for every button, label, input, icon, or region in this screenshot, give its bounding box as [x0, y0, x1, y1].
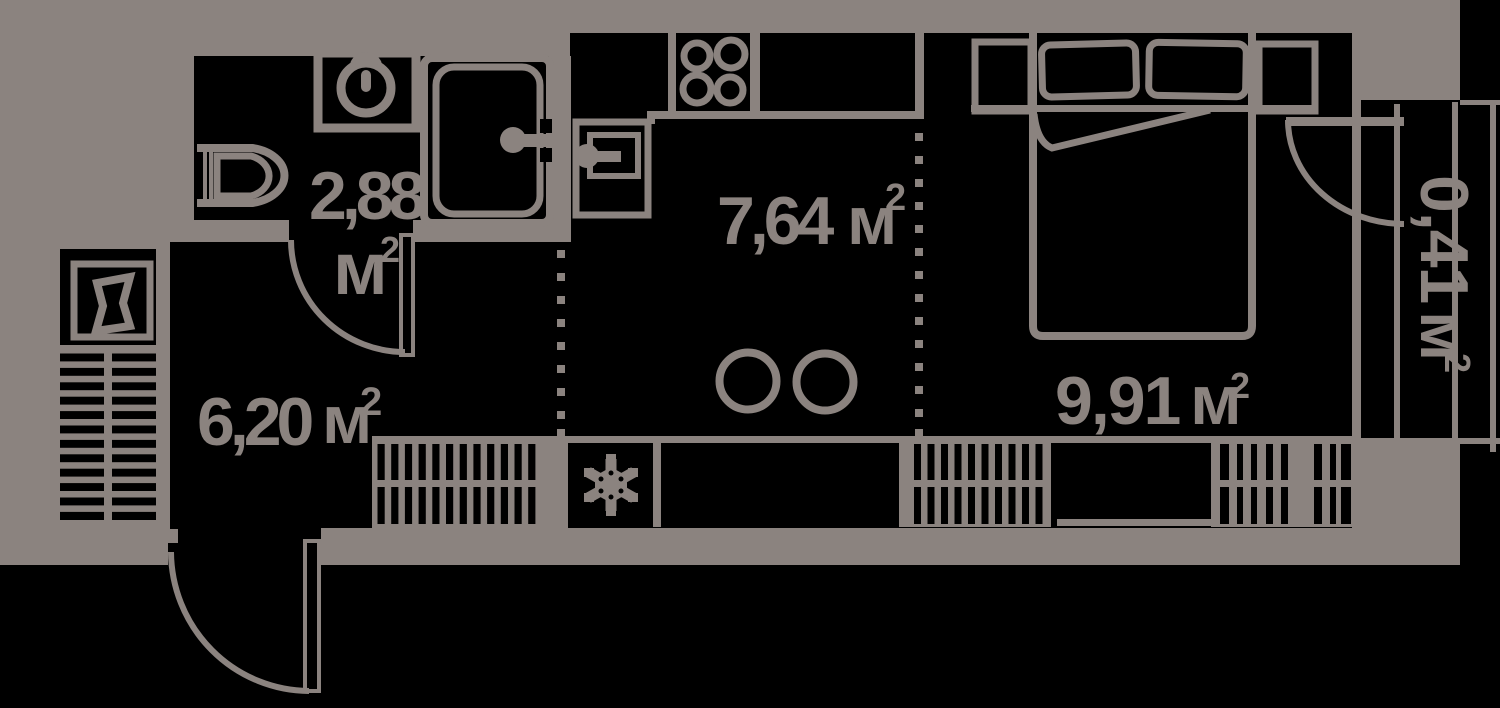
svg-text:2: 2	[360, 380, 382, 424]
svg-text:0,41: 0,41	[1406, 175, 1482, 303]
svg-text:7,64: 7,64	[717, 183, 835, 259]
svg-text:9,91: 9,91	[1055, 363, 1180, 439]
svg-text:2: 2	[380, 229, 400, 270]
svg-text:2,88: 2,88	[309, 158, 425, 234]
svg-text:6,20: 6,20	[197, 384, 313, 460]
svg-text:2: 2	[885, 177, 906, 219]
svg-text:2: 2	[1230, 365, 1250, 406]
svg-text:2: 2	[1437, 353, 1478, 373]
